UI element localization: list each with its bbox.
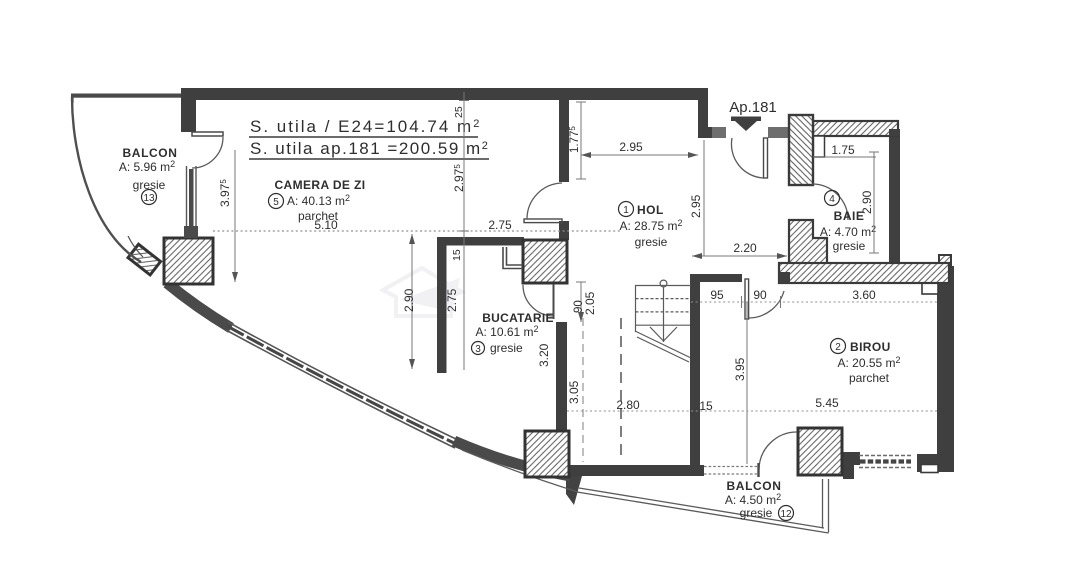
svg-text:2: 2: [835, 342, 841, 353]
svg-text:1: 1: [623, 205, 629, 216]
svg-text:A: 4.50 m2: A: 4.50 m2: [725, 492, 781, 507]
svg-text:A: 20.55 m2: A: 20.55 m2: [837, 355, 900, 370]
svg-text:3.20: 3.20: [537, 343, 551, 367]
svg-text:2.95: 2.95: [689, 194, 703, 218]
svg-text:A: 4.70 m2: A: 4.70 m2: [820, 224, 876, 239]
svg-text:2.75: 2.75: [445, 288, 459, 312]
svg-text:5.45: 5.45: [815, 396, 839, 410]
svg-text:2.05: 2.05: [583, 291, 597, 315]
svg-text:BALCON: BALCON: [727, 479, 782, 493]
svg-text:A: 10.61 m2: A: 10.61 m2: [475, 324, 538, 339]
svg-text:parchet: parchet: [849, 371, 890, 385]
svg-text:2.80: 2.80: [616, 398, 640, 412]
svg-text:13: 13: [143, 193, 155, 204]
svg-text:gresie: gresie: [635, 235, 668, 249]
svg-text:90: 90: [753, 288, 767, 302]
svg-text:2.90: 2.90: [860, 190, 874, 214]
svg-text:2.20: 2.20: [733, 241, 757, 255]
svg-text:gresie: gresie: [833, 239, 866, 253]
svg-text:2.75: 2.75: [488, 218, 512, 232]
svg-text:2.95: 2.95: [619, 140, 643, 154]
svg-text:3.95: 3.95: [733, 357, 747, 381]
svg-text:BUCATARIE: BUCATARIE: [482, 311, 554, 325]
svg-text:2.90: 2.90: [402, 288, 416, 312]
svg-text:1.75: 1.75: [831, 143, 855, 157]
svg-text:A: 40.13 m2: A: 40.13 m2: [287, 193, 350, 208]
svg-text:15: 15: [699, 399, 713, 413]
svg-text:S. utila / E24=104.74 m2: S. utila / E24=104.74 m2: [250, 117, 481, 136]
svg-text:3.05: 3.05: [567, 380, 581, 404]
svg-text:Ap.181: Ap.181: [729, 99, 777, 116]
svg-text:3.60: 3.60: [852, 288, 876, 302]
svg-text:BIROU: BIROU: [850, 340, 891, 354]
svg-text:25: 25: [453, 106, 465, 118]
svg-text:95: 95: [710, 288, 724, 302]
svg-text:15: 15: [451, 249, 463, 261]
svg-text:CAMERA DE ZI: CAMERA DE ZI: [274, 178, 365, 192]
svg-text:A: 5.96 m2: A: 5.96 m2: [119, 159, 175, 174]
svg-text:BALCON: BALCON: [123, 146, 178, 160]
svg-text:gresie: gresie: [490, 341, 523, 355]
svg-text:4: 4: [829, 194, 835, 205]
svg-text:3: 3: [475, 344, 481, 355]
svg-text:HOL: HOL: [637, 203, 664, 217]
svg-text:A: 28.75 m2: A: 28.75 m2: [619, 218, 682, 233]
svg-text:5: 5: [273, 197, 279, 208]
svg-text:12: 12: [780, 509, 792, 520]
svg-text:5.10: 5.10: [314, 218, 338, 232]
svg-text:S. utila ap.181 =200.59 m2: S. utila ap.181 =200.59 m2: [250, 139, 489, 158]
svg-text:gresie: gresie: [740, 506, 773, 520]
